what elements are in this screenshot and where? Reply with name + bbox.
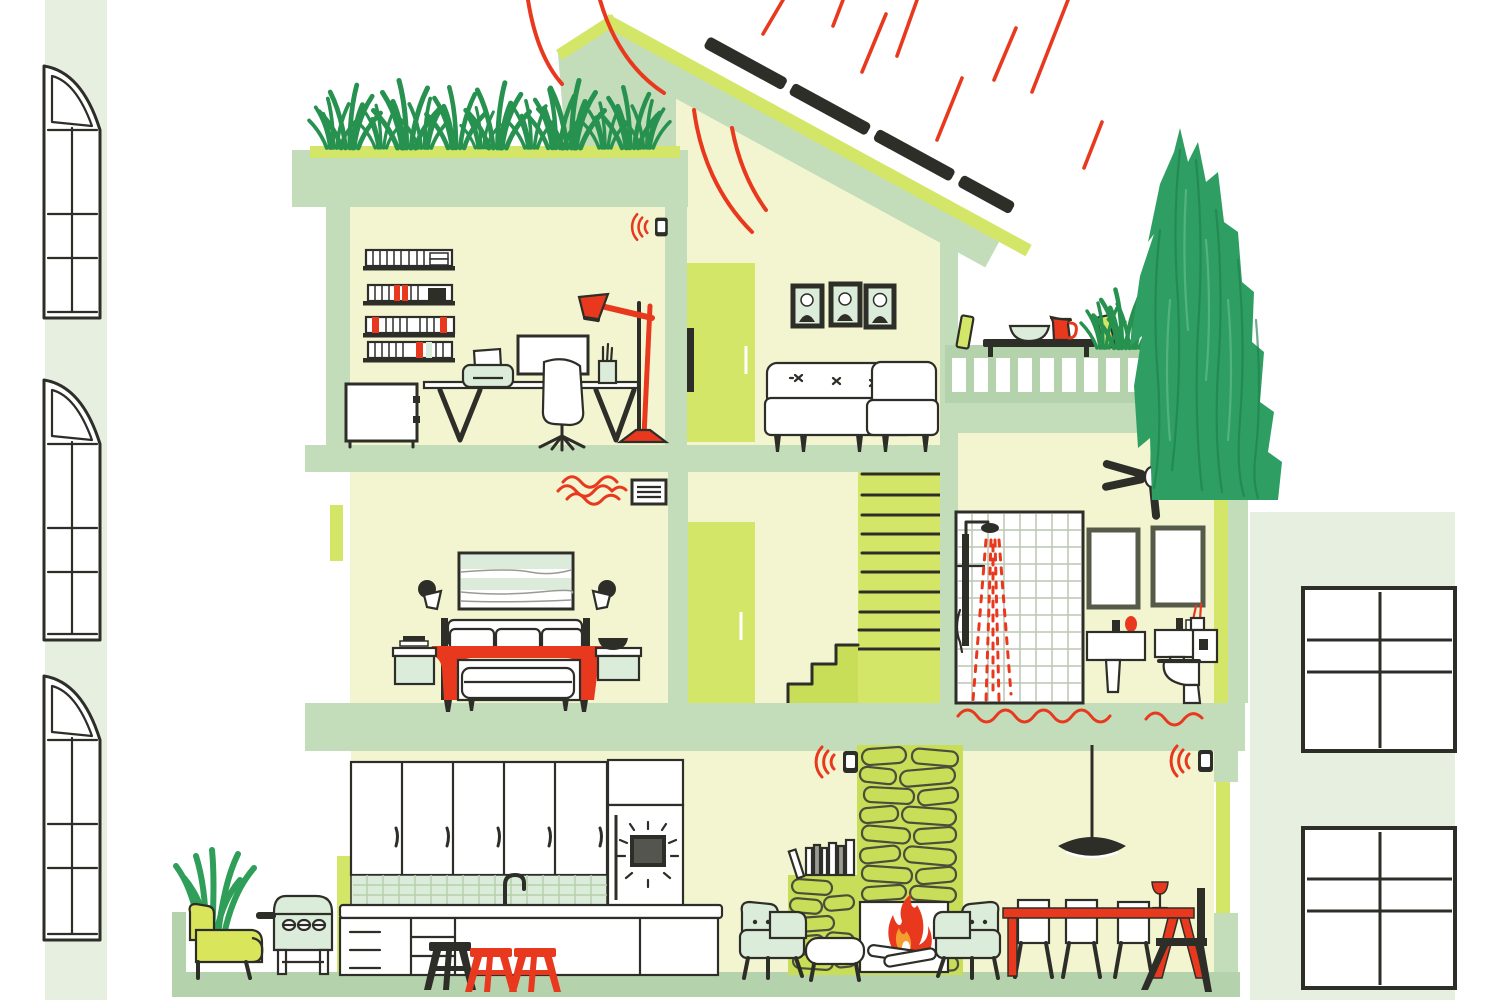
green-roof-grass <box>309 81 680 159</box>
cup <box>1191 618 1204 630</box>
door-handle <box>687 328 694 392</box>
portrait-frames <box>793 284 894 327</box>
smart-fridge <box>608 805 683 908</box>
right-wall-block-a <box>1214 751 1238 782</box>
heat-vent <box>632 480 666 504</box>
tile-backsplash <box>351 875 607 905</box>
tiled-shower <box>956 512 1083 703</box>
ground-step <box>172 912 186 978</box>
second-floor-slab <box>305 445 943 472</box>
fridge-cabinet <box>608 760 683 805</box>
bedroom-door <box>688 522 755 703</box>
grill <box>256 896 332 974</box>
shower-head <box>981 523 999 533</box>
terrace-tree <box>1130 128 1282 500</box>
right-neighbor-building <box>1250 512 1455 1000</box>
bedroom-left-accent <box>330 505 343 561</box>
file-cabinet <box>346 384 420 447</box>
mirror <box>1153 528 1203 605</box>
arched-window <box>44 676 100 940</box>
grid-window <box>1303 588 1455 751</box>
soap-dispenser <box>1125 616 1137 632</box>
bedroom-hall-wall <box>668 472 688 703</box>
landscape-art <box>459 553 573 609</box>
roof-terrace <box>956 290 1157 358</box>
stair-wall <box>858 468 943 703</box>
arched-window <box>44 380 100 640</box>
yellow-chair <box>190 904 263 978</box>
red-pitcher <box>1051 317 1076 340</box>
patio <box>176 850 332 978</box>
office-hall-wall <box>665 207 687 447</box>
green-roof-slab <box>292 150 688 207</box>
ground-right-accent <box>1216 782 1230 913</box>
shower-bar <box>962 534 969 646</box>
eco-house-cutaway-illustration <box>0 0 1500 1000</box>
kitchen <box>340 760 722 992</box>
mirror <box>1089 530 1138 607</box>
grid-window <box>1303 828 1455 988</box>
leaning-panel <box>956 315 973 349</box>
bowl <box>1010 326 1049 341</box>
left-neighbor-building <box>44 0 107 1000</box>
